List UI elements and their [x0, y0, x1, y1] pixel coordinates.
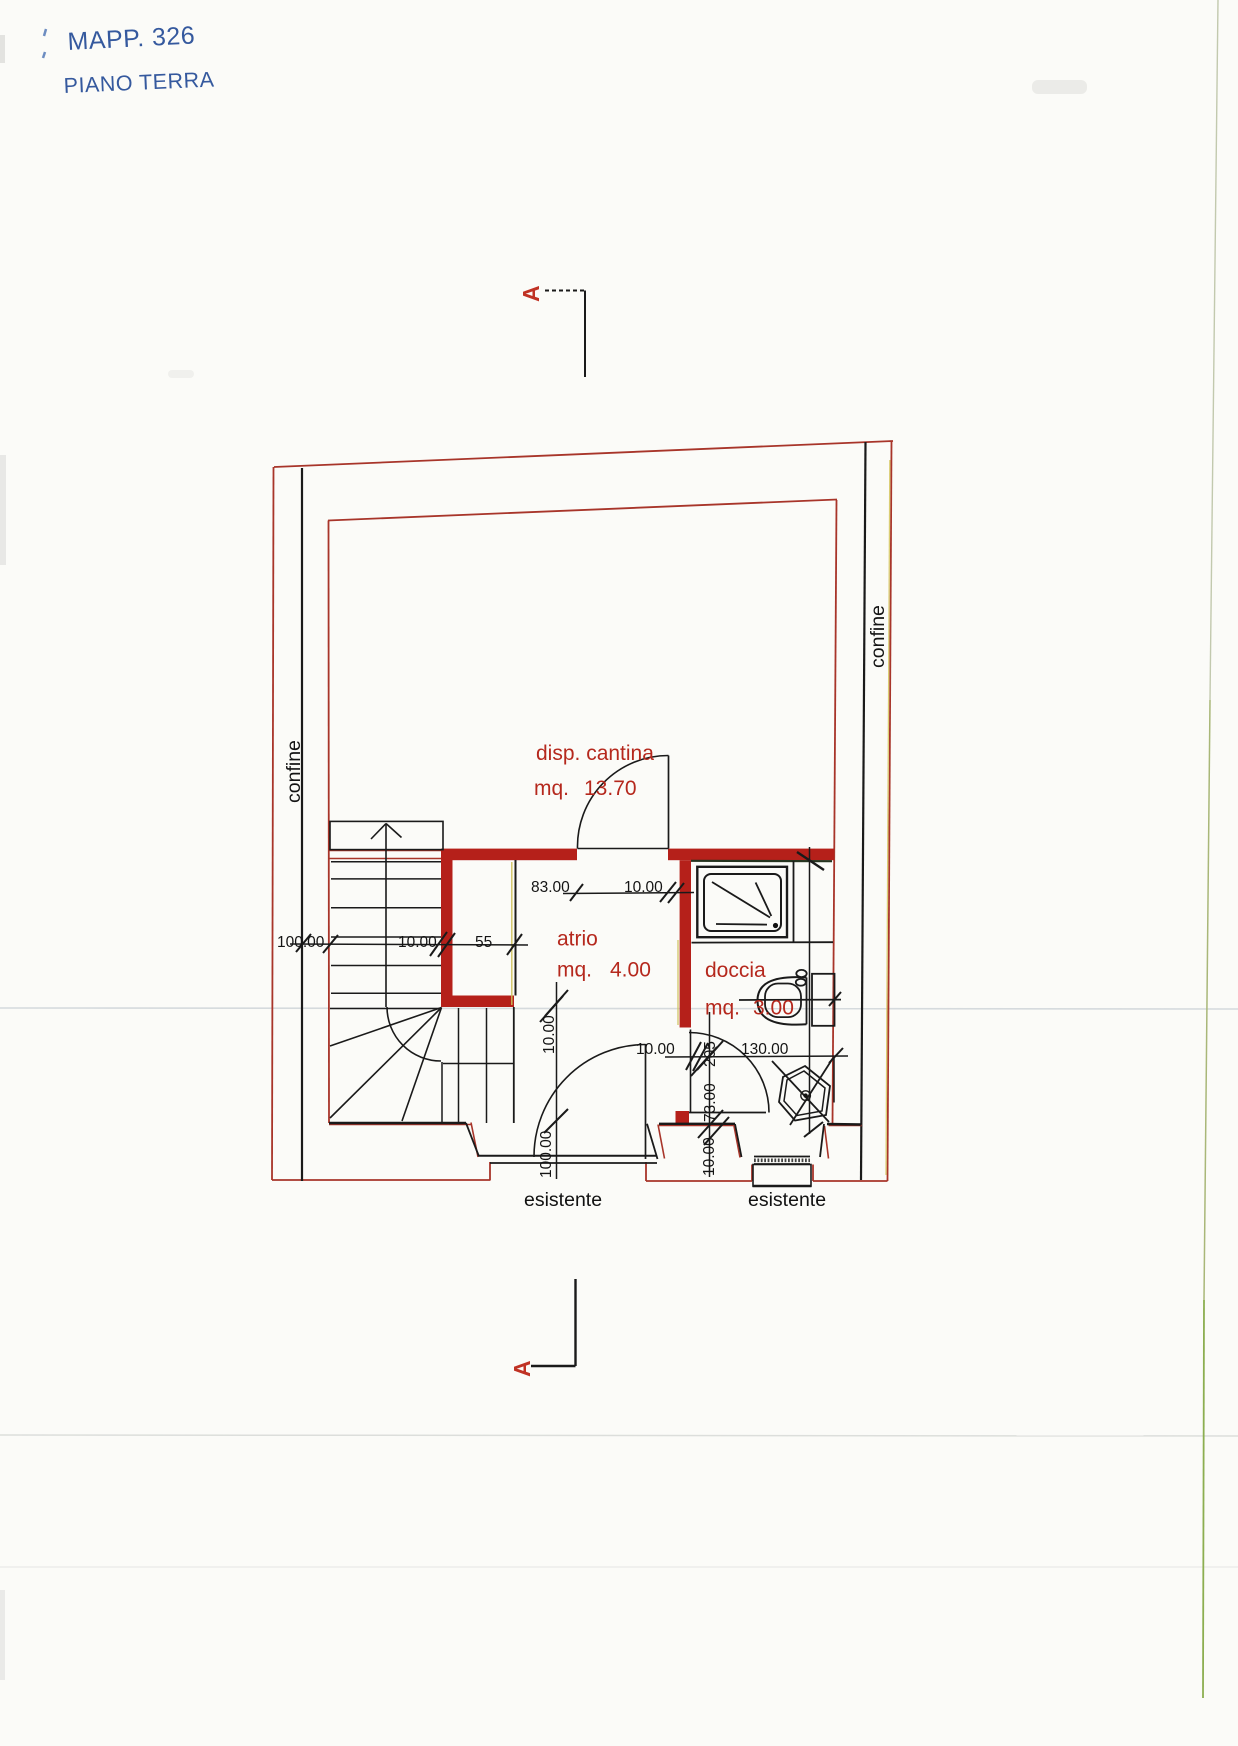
svg-text:4.00: 4.00 [610, 959, 651, 982]
svg-text:10.00: 10.00 [541, 1015, 558, 1054]
svg-text:100.00: 100.00 [538, 1130, 555, 1178]
svg-text:10.00: 10.00 [624, 879, 663, 896]
svg-text:esistente: esistente [748, 1189, 826, 1211]
svg-text:mq.: mq. [534, 777, 569, 800]
svg-text:73.00: 73.00 [702, 1083, 719, 1122]
svg-text:130.00: 130.00 [741, 1041, 789, 1058]
svg-text:10.00: 10.00 [636, 1041, 675, 1058]
svg-text:10.00: 10.00 [398, 934, 437, 951]
svg-text:55: 55 [475, 934, 492, 951]
svg-text:205: 205 [702, 1041, 719, 1067]
svg-text:A: A [518, 285, 544, 302]
svg-text:10.00: 10.00 [701, 1137, 718, 1176]
svg-text:atrio: atrio [557, 928, 598, 951]
svg-text:mq.: mq. [705, 997, 740, 1020]
svg-text:confine: confine [867, 605, 889, 668]
svg-text:disp. cantina: disp. cantina [536, 742, 654, 765]
svg-text:A: A [509, 1360, 535, 1377]
svg-text:83.00: 83.00 [531, 879, 570, 896]
svg-text:3.00: 3.00 [753, 997, 794, 1020]
svg-text:esistente: esistente [524, 1189, 602, 1211]
svg-text:doccia: doccia [705, 959, 766, 982]
svg-text:13.70: 13.70 [584, 777, 637, 800]
svg-text:mq.: mq. [557, 959, 592, 982]
svg-text:100.00: 100.00 [277, 934, 325, 951]
